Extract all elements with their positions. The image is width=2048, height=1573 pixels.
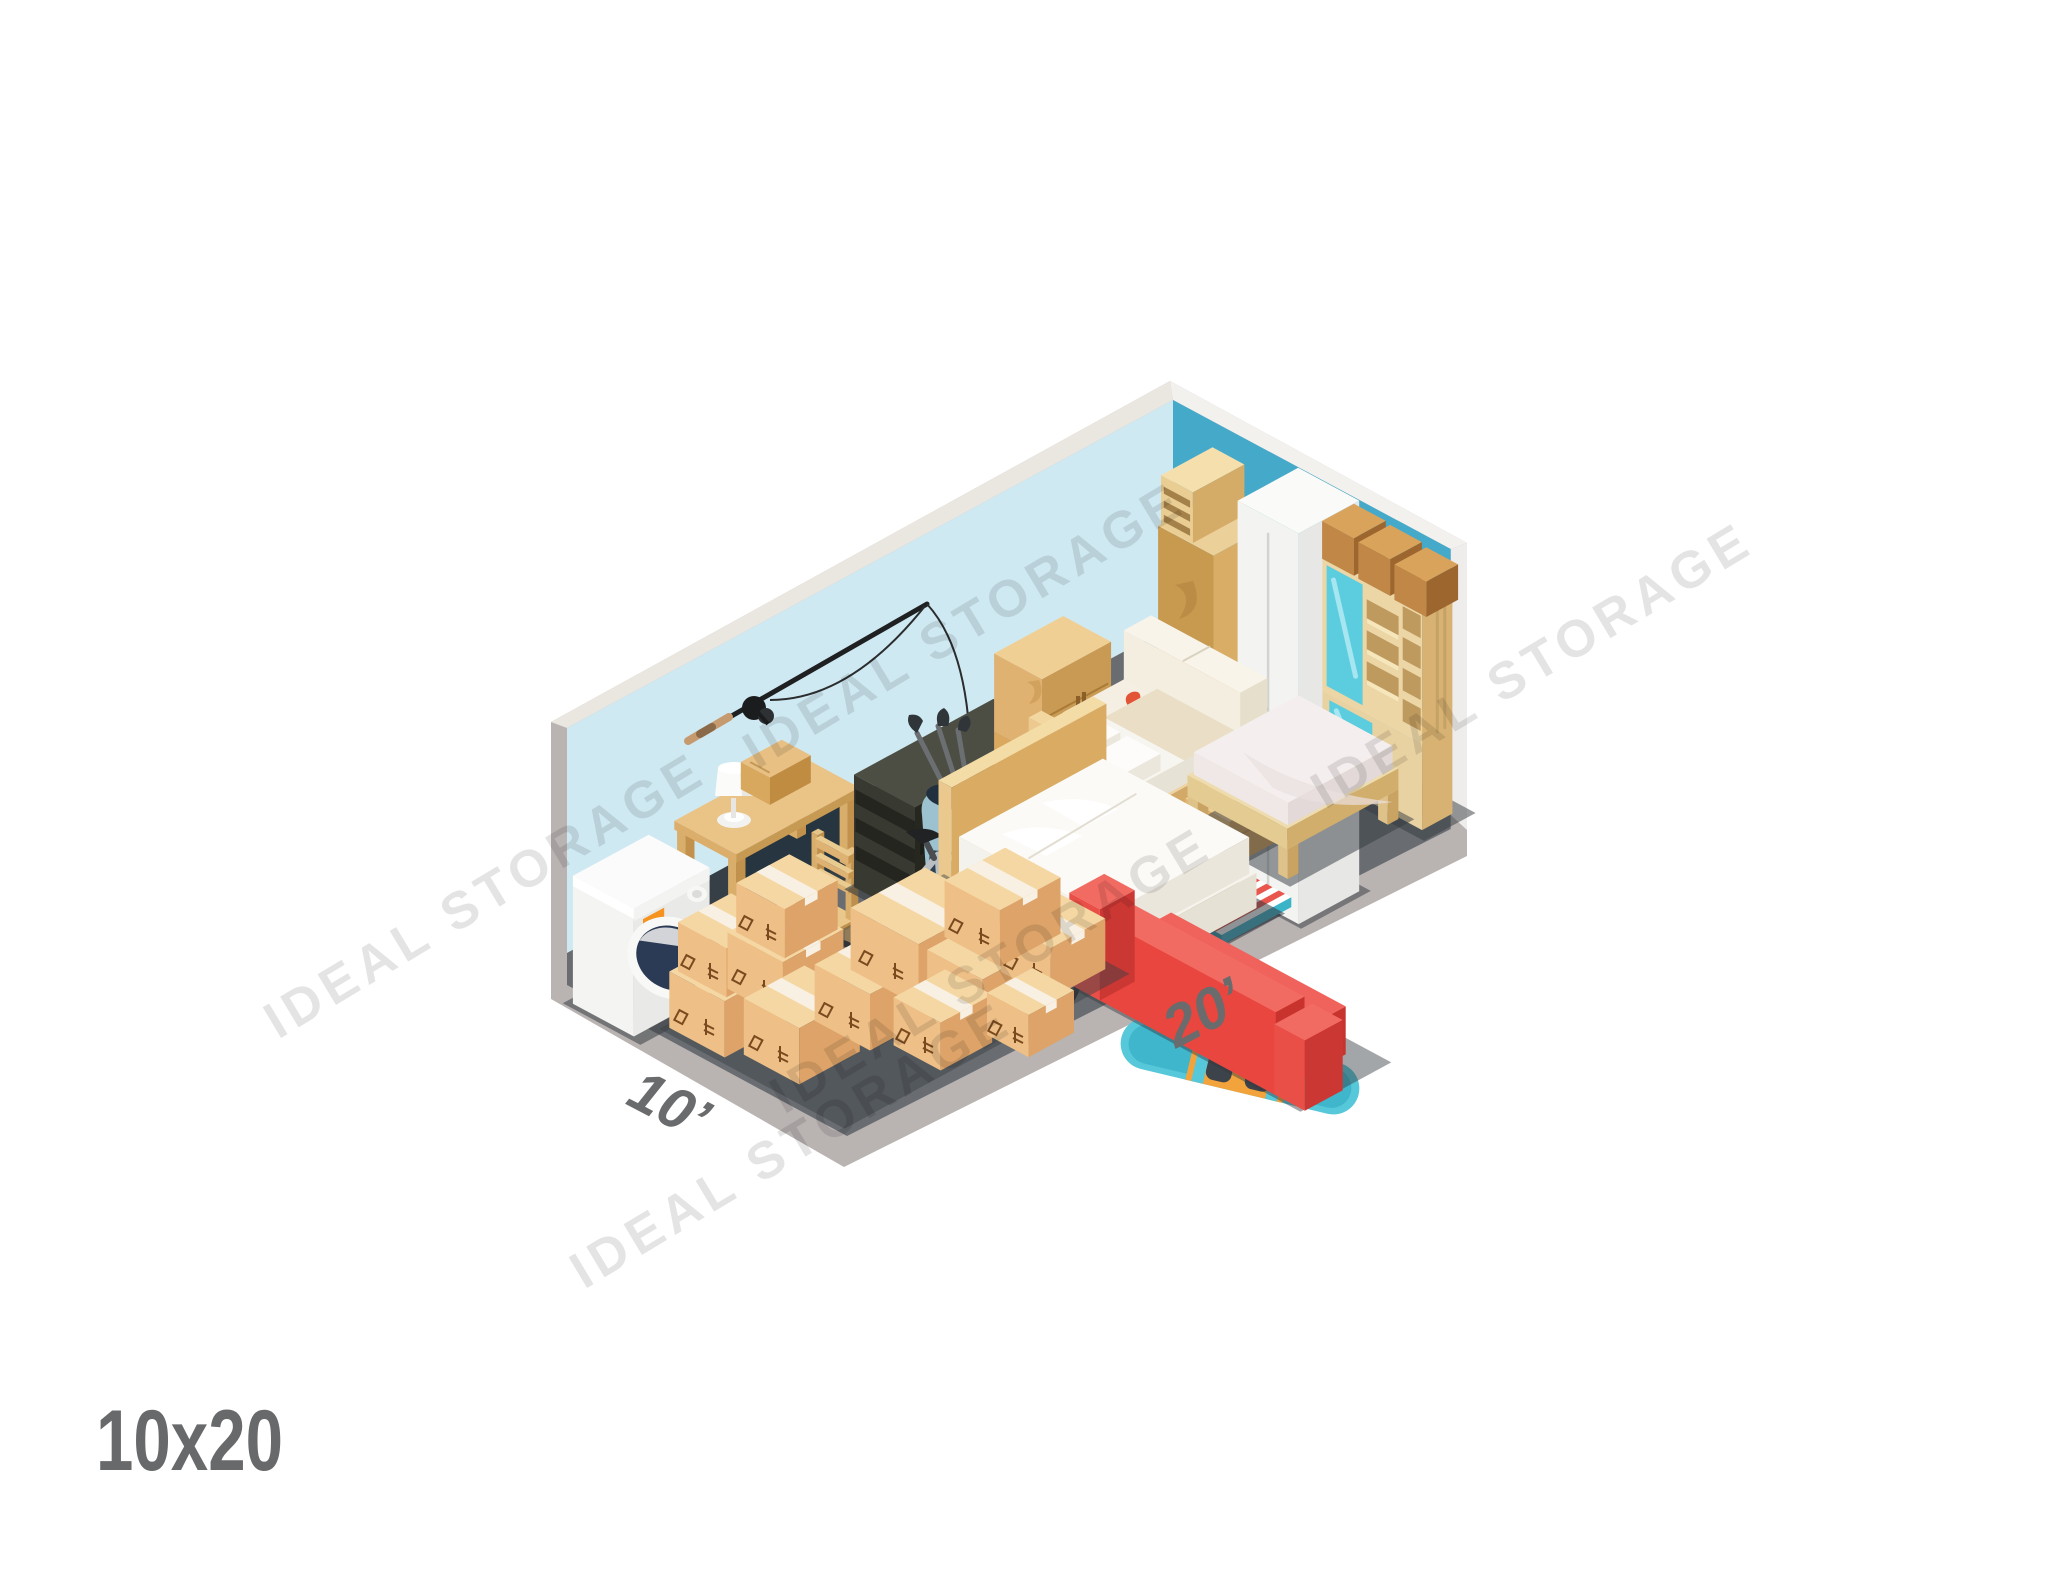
svg-text:10x20: 10x20	[96, 1393, 283, 1489]
